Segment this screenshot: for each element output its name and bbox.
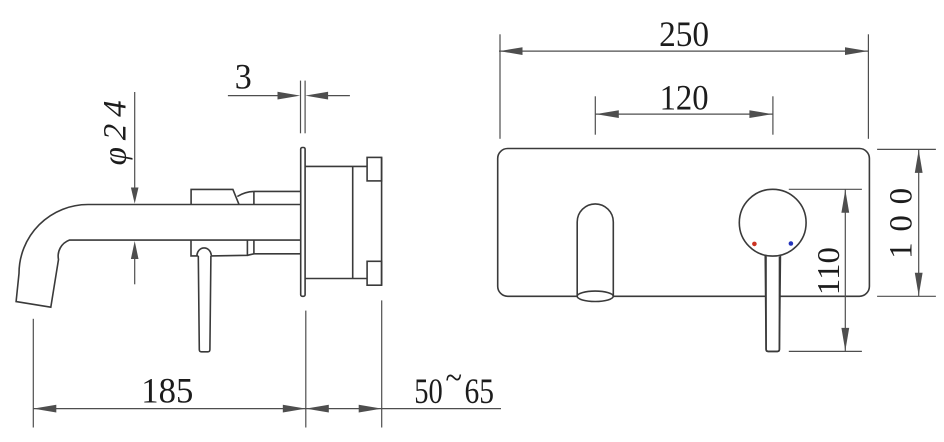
svg-text:185: 185 <box>141 370 193 410</box>
svg-text:φ24: φ24 <box>98 100 134 165</box>
svg-text:100: 100 <box>884 188 920 259</box>
svg-text:120: 120 <box>660 77 709 117</box>
svg-text:50: 50 <box>414 371 443 411</box>
svg-text:110: 110 <box>810 247 846 295</box>
svg-text:250: 250 <box>659 14 709 54</box>
svg-text:~: ~ <box>446 358 463 398</box>
svg-text:65: 65 <box>464 371 494 411</box>
svg-text:3: 3 <box>235 56 252 96</box>
